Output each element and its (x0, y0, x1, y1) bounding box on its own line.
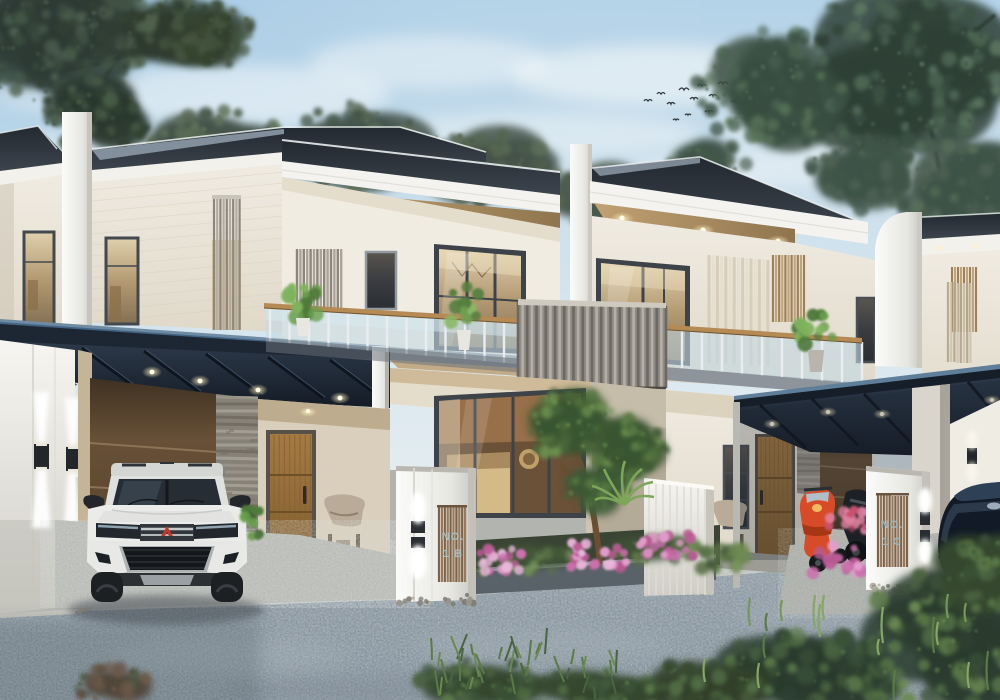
svg-text:1 C: 1 C (882, 536, 902, 548)
svg-text:1 B: 1 B (443, 548, 463, 560)
svg-text:NO.: NO. (442, 531, 465, 543)
svg-text:NO.: NO. (881, 519, 904, 531)
